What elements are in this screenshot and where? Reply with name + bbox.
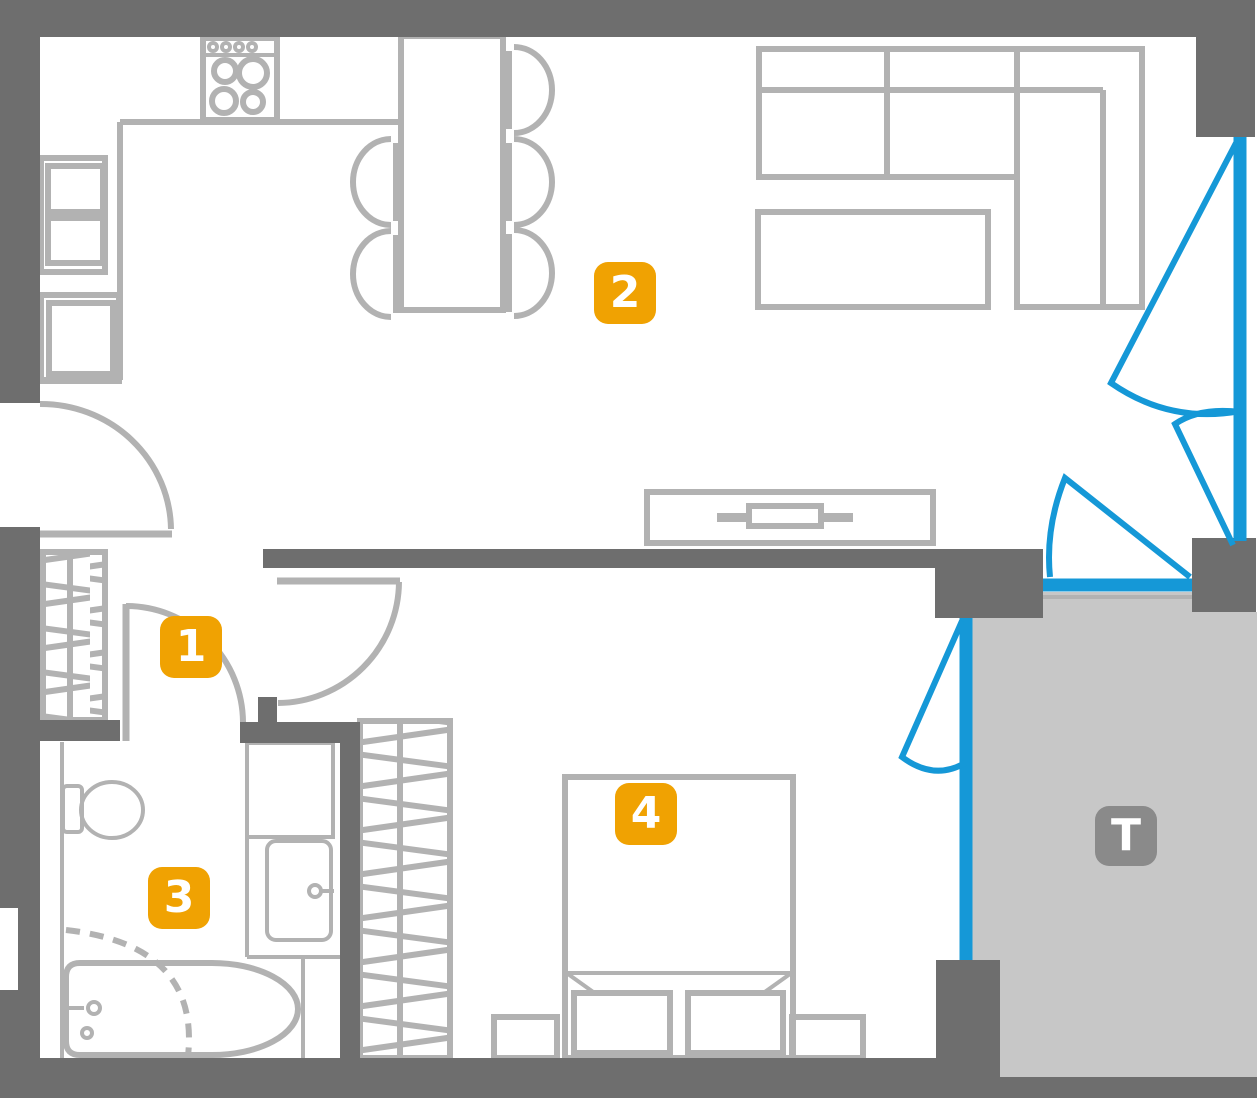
room-badge-1: 1 [160,616,222,678]
tv-screen [749,506,821,526]
wall-left-upper [0,0,40,403]
wall-bathroom-top-left [40,720,120,741]
wall-top [0,0,1255,37]
room-badge-2: 2 [594,262,656,324]
wall-interior-pier [935,549,1043,618]
wall-door-stub [258,697,277,723]
wall-terrace-bottom [1000,1077,1257,1098]
wall-top-right-block [1196,0,1255,137]
terrace-badge: T [1095,806,1157,866]
wall-bottom [0,1058,1000,1098]
kitchen-stove [203,38,277,120]
bedroom-wardrobe [360,721,450,1058]
floor-plan: 1 2 3 4 T [0,0,1259,1098]
wall-left-lower [0,527,40,1098]
wall-interior [263,549,1043,568]
wall-right-mid-block [1192,538,1256,612]
room-badge-4: 4 [615,783,677,845]
room-badge-3: 3 [148,867,210,929]
dining-table [401,36,503,310]
wall-niche [0,908,18,990]
wall-bathroom-right [340,722,360,1058]
hallway-closet [43,552,105,720]
wall-pier-bottom [936,960,1000,1078]
floor-plan-svg [0,0,1259,1098]
